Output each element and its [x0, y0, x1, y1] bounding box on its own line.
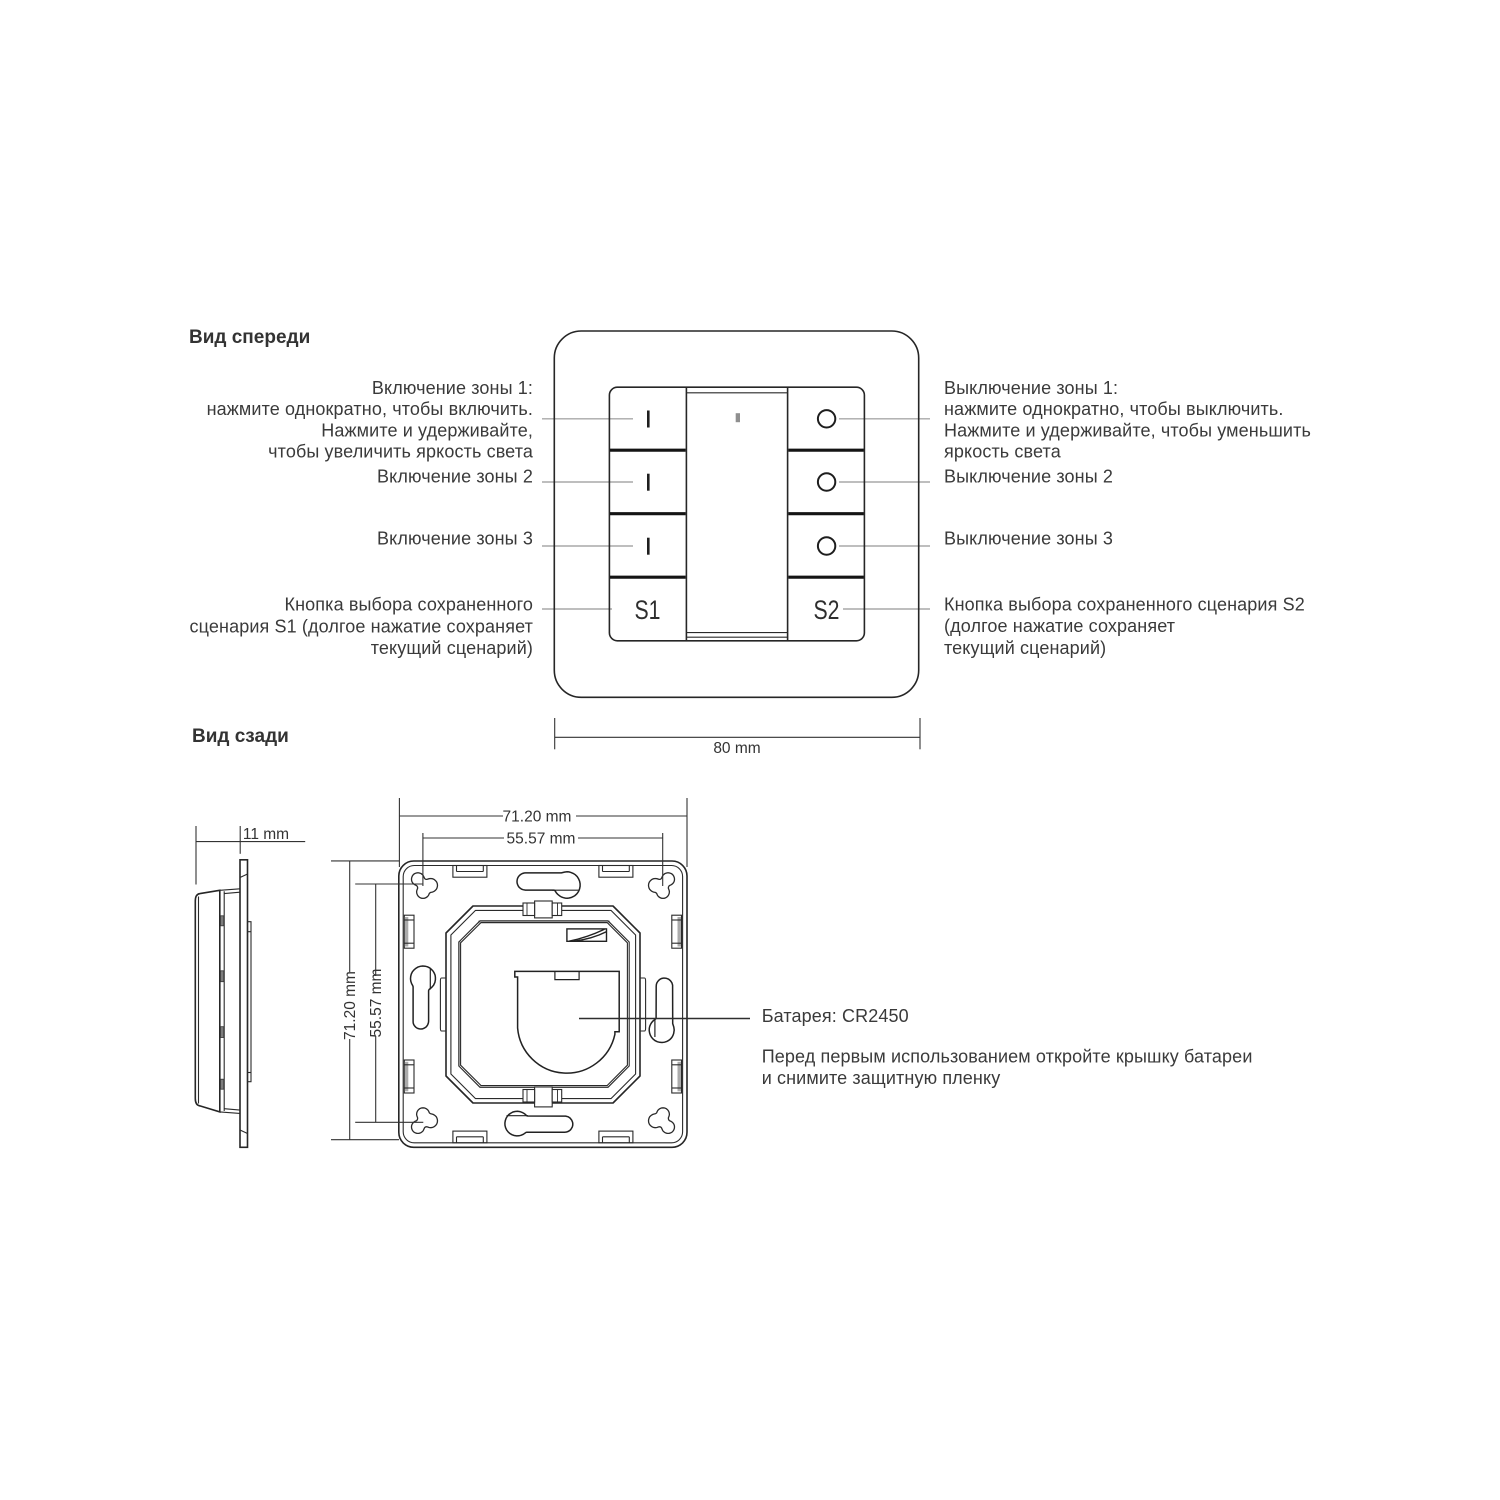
- svg-text:нажмите однократно, чтобы вклю: нажмите однократно, чтобы включить.: [207, 399, 533, 419]
- svg-text:71.20 mm: 71.20 mm: [342, 971, 359, 1040]
- svg-text:55.57 mm: 55.57 mm: [507, 831, 576, 848]
- svg-text:S1: S1: [635, 595, 661, 625]
- svg-text:Выключение зоны 1:: Выключение зоны 1:: [944, 378, 1118, 398]
- svg-text:чтобы увеличить яркость света: чтобы увеличить яркость света: [268, 442, 534, 462]
- svg-text:нажмите однократно, чтобы выкл: нажмите однократно, чтобы выключить.: [944, 399, 1283, 419]
- svg-text:S2: S2: [814, 595, 840, 625]
- svg-text:(долгое нажатие сохраняет: (долгое нажатие сохраняет: [944, 616, 1175, 636]
- svg-text:Нажмите и удерживайте,: Нажмите и удерживайте,: [321, 420, 533, 440]
- svg-text:71.20 mm: 71.20 mm: [503, 809, 572, 826]
- svg-text:и снимите защитную пленку: и снимите защитную пленку: [762, 1068, 1001, 1088]
- svg-text:Перед первым использованием от: Перед первым использованием откройте кры…: [762, 1047, 1253, 1067]
- svg-text:Вид сзади: Вид сзади: [192, 726, 289, 747]
- svg-text:55.57 mm: 55.57 mm: [368, 969, 385, 1038]
- svg-text:11 mm: 11 mm: [243, 826, 289, 843]
- svg-text:текущий сценарий): текущий сценарий): [371, 638, 533, 658]
- svg-text:Нажмите и удерживайте, чтобы у: Нажмите и удерживайте, чтобы уменьшить: [944, 420, 1311, 440]
- svg-text:Вид спереди: Вид спереди: [189, 327, 310, 348]
- svg-text:Включение зоны 2: Включение зоны 2: [377, 467, 533, 487]
- svg-text:80 mm: 80 mm: [713, 740, 760, 757]
- svg-text:сценария S1 (долгое нажатие со: сценария S1 (долгое нажатие сохраняет: [190, 617, 533, 637]
- svg-text:Кнопка выбора сохраненного: Кнопка выбора сохраненного: [285, 595, 533, 615]
- svg-text:Выключение зоны 2: Выключение зоны 2: [944, 467, 1113, 487]
- svg-text:Выключение зоны 3: Выключение зоны 3: [944, 529, 1113, 549]
- svg-text:текущий сценарий): текущий сценарий): [944, 638, 1106, 658]
- svg-text:Включение зоны 1:: Включение зоны 1:: [372, 378, 533, 398]
- svg-text:Батарея: CR2450: Батарея: CR2450: [762, 1006, 909, 1026]
- svg-text:Кнопка выбора сохраненного сце: Кнопка выбора сохраненного сценария S2: [944, 594, 1305, 614]
- svg-text:Включение зоны 3: Включение зоны 3: [377, 529, 533, 549]
- svg-text:яркость света: яркость света: [944, 442, 1062, 462]
